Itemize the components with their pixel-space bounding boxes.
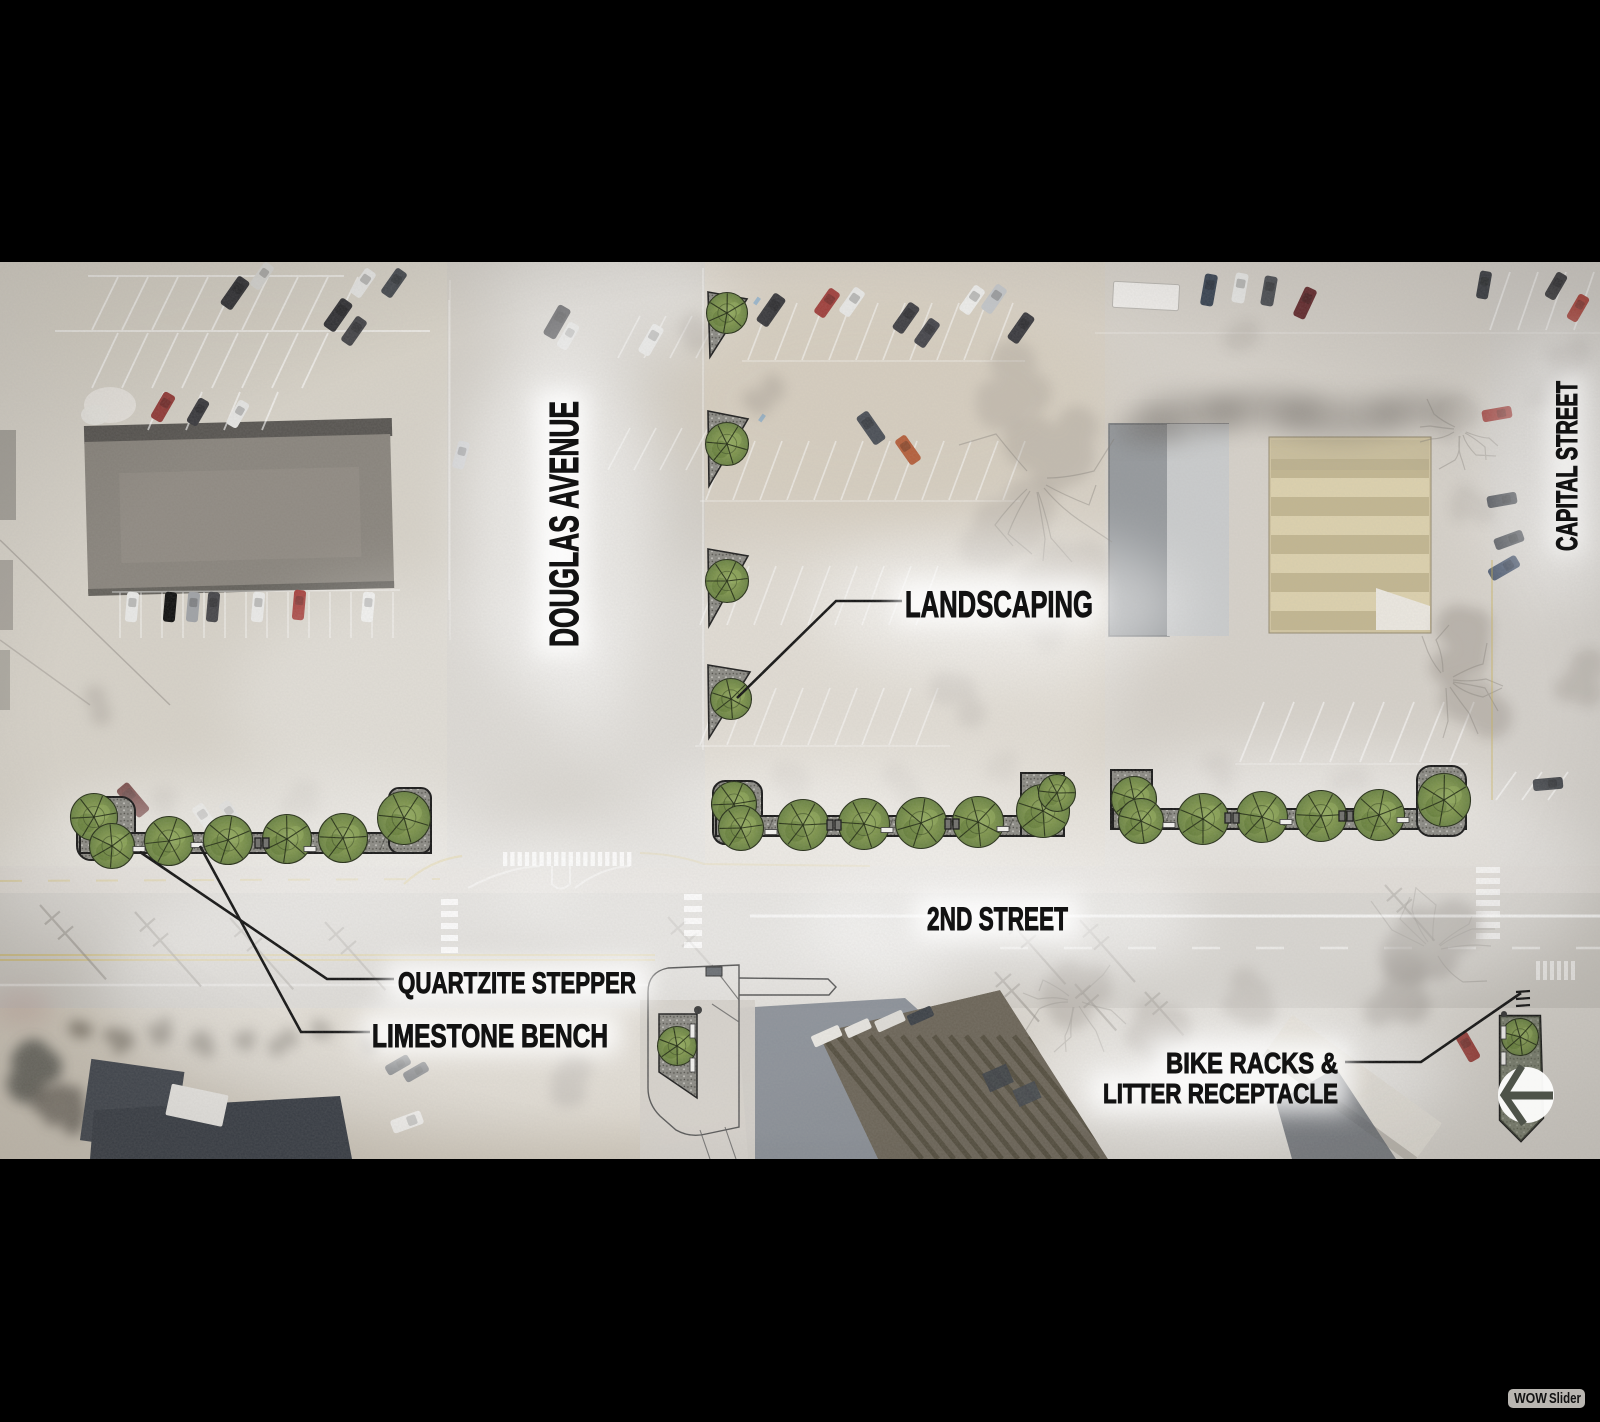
svg-text:DOUGLAS AVENUE: DOUGLAS AVENUE: [541, 401, 587, 647]
svg-text:CAPITAL STREET: CAPITAL STREET: [1551, 381, 1584, 551]
svg-text:LIMESTONE BENCH: LIMESTONE BENCH: [372, 1018, 608, 1054]
svg-text:QUARTZITE STEPPER: QUARTZITE STEPPER: [398, 967, 636, 1000]
svg-text:Slider: Slider: [1549, 1391, 1581, 1407]
svg-text:2ND STREET: 2ND STREET: [927, 901, 1068, 937]
svg-text:WOW: WOW: [1514, 1391, 1547, 1407]
svg-text:LITTER RECEPTACLE: LITTER RECEPTACLE: [1103, 1078, 1338, 1109]
svg-text:BIKE RACKS &: BIKE RACKS &: [1166, 1048, 1338, 1080]
svg-text:LANDSCAPING: LANDSCAPING: [905, 584, 1093, 625]
